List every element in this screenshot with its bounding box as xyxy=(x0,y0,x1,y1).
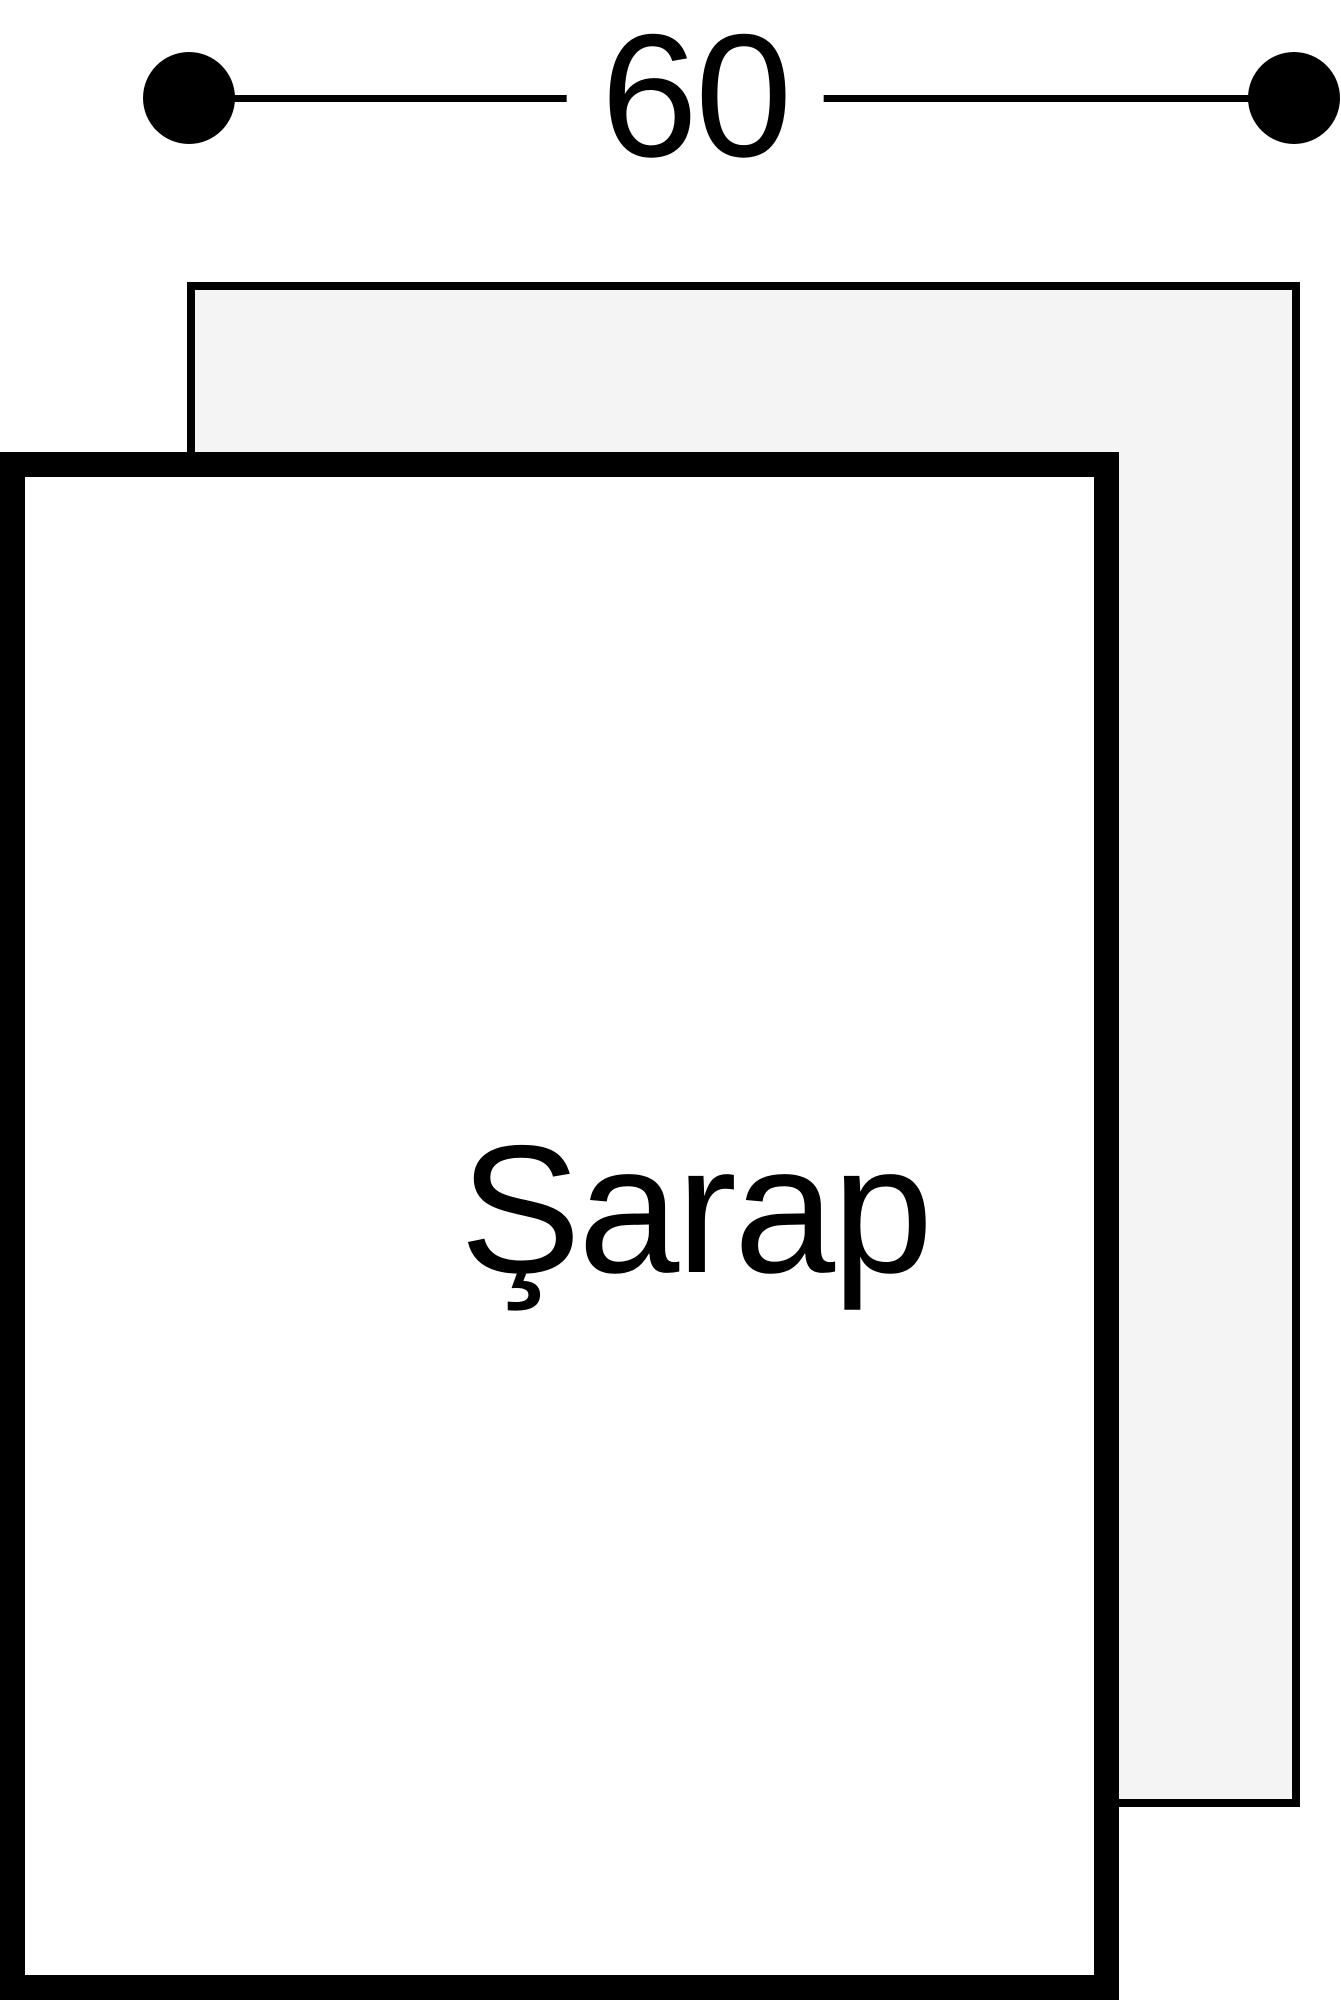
appliance-label: Şarap xyxy=(460,1118,931,1300)
dimension-value: 60 xyxy=(567,9,824,184)
dimension-diagram: 60 Şarap xyxy=(0,0,1341,2000)
dimension-endpoint-right-dot xyxy=(1248,52,1340,144)
dimension-endpoint-left-dot xyxy=(143,52,235,144)
